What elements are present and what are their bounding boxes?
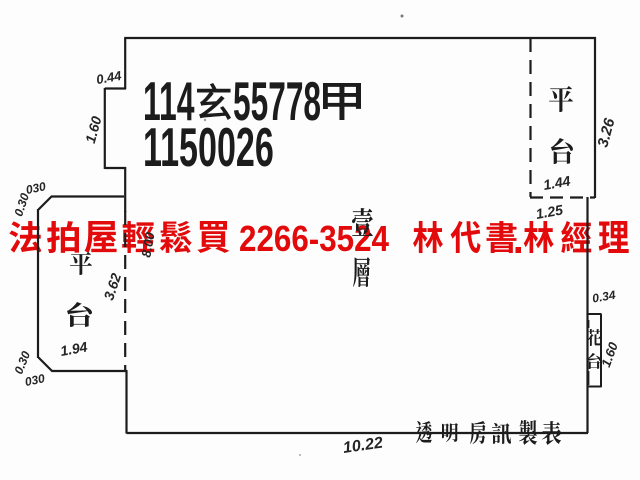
svg-text:1150026: 1150026 xyxy=(143,117,274,178)
